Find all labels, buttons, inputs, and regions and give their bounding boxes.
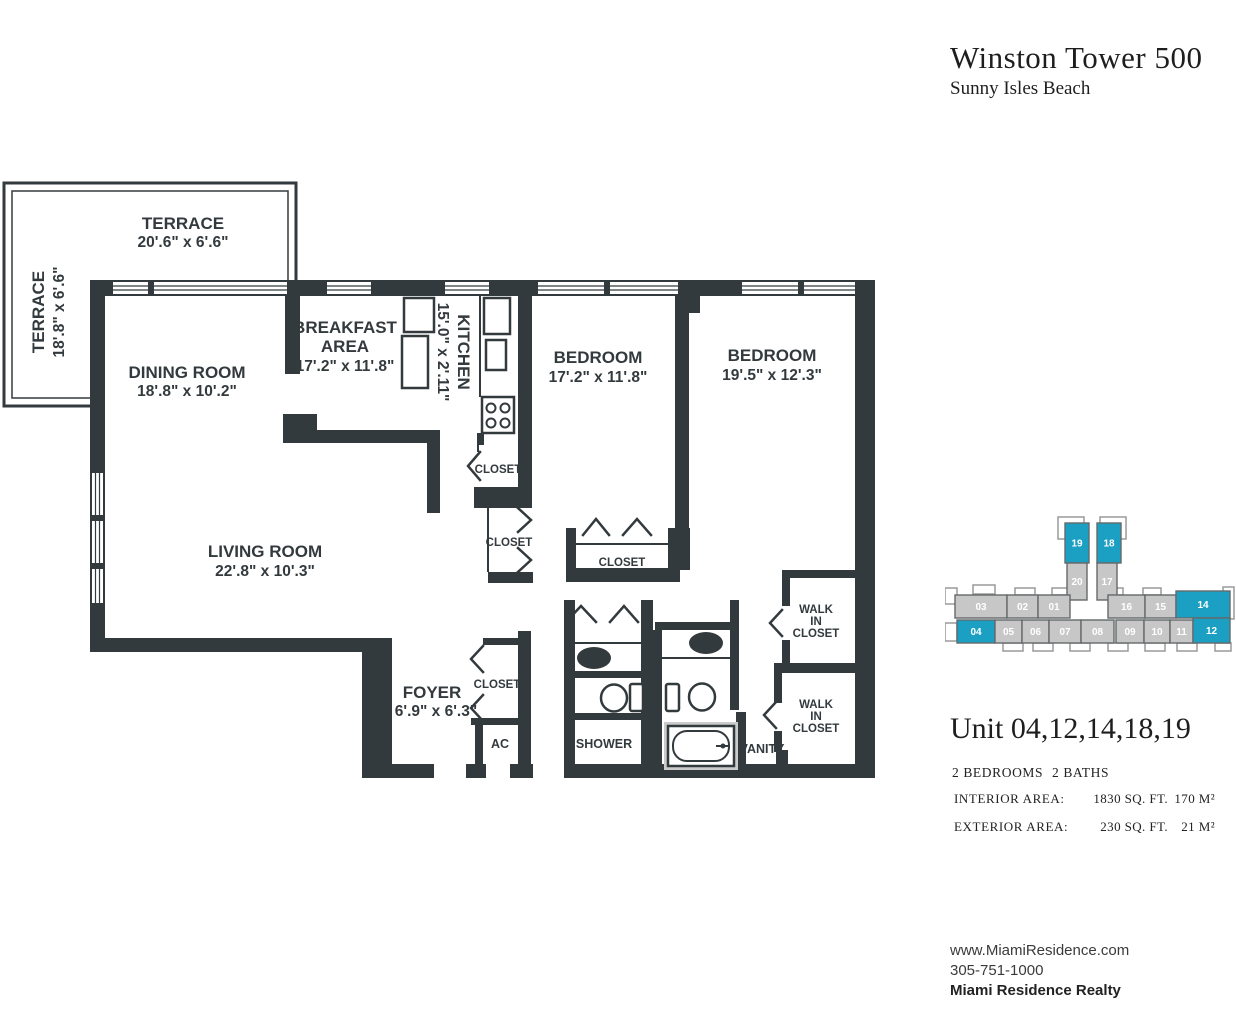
- unit-04-label: 04: [970, 627, 982, 638]
- bedroom2-label: BEDROOM: [728, 346, 817, 365]
- unit-16-label: 16: [1121, 602, 1133, 613]
- unit-07-label: 07: [1059, 627, 1071, 638]
- terrace-side-label: TERRACE: [29, 271, 48, 353]
- bedroom1-dims: 17'.2" x 11'.8": [549, 369, 648, 386]
- unit-12-label: 12: [1206, 626, 1218, 637]
- kitchen-label: KITCHEN: [454, 314, 473, 390]
- unit-01-label: 01: [1048, 602, 1060, 613]
- wic2-label-3: CLOSET: [793, 723, 840, 735]
- footer-company: Miami Residence Realty: [950, 982, 1121, 999]
- unit-09-label: 09: [1124, 627, 1136, 638]
- kitchen-dims: 15'.0" x 2'.11": [434, 303, 451, 402]
- windows-top: [113, 282, 855, 294]
- windows-left: [92, 473, 103, 603]
- building-title: Winston Tower 500: [950, 40, 1203, 76]
- exterior-area-sqft: 230 SQ. FT.: [1060, 819, 1168, 835]
- interior-area-m2: 170 M²: [1160, 791, 1215, 807]
- vanity-label: VANITY: [740, 742, 786, 756]
- living-dims: 22'.8" x 10'.3": [215, 563, 315, 580]
- breakfast-cabinet-2: [402, 336, 428, 388]
- baths-spec: 2 BATHS: [1052, 765, 1109, 781]
- unit-map: 19182017030201161514040506070809101112: [945, 515, 1235, 655]
- kitchen-cabinet: [486, 340, 506, 370]
- sink-2: [689, 632, 723, 654]
- interior-area-sqft: 1830 SQ. FT.: [1060, 791, 1168, 807]
- unit-05-label: 05: [1003, 627, 1015, 638]
- sink-1: [577, 647, 611, 669]
- exterior-area-label: EXTERIOR AREA:: [954, 819, 1068, 835]
- bedroom2-dims: 19'.5" x 12'.3": [722, 367, 822, 384]
- unit-02-label: 02: [1017, 602, 1029, 613]
- unit-18-label: 18: [1103, 539, 1115, 550]
- closet-bedroom-label: CLOSET: [599, 557, 646, 569]
- fridge: [484, 298, 510, 334]
- dining-dims: 18'.8" x 10'.2": [137, 383, 237, 400]
- unit-title: Unit 04,12,14,18,19: [950, 712, 1191, 746]
- bedroom1-label: BEDROOM: [554, 348, 643, 367]
- unit-08-label: 08: [1092, 627, 1104, 638]
- wic1-label-1: WALK: [799, 604, 834, 616]
- unit-map-units: 19182017030201161514040506070809101112: [955, 523, 1230, 643]
- closet-hall-label: CLOSET: [486, 537, 533, 549]
- shower-label: SHOWER: [576, 737, 632, 751]
- toilet-2: [666, 684, 715, 712]
- interior-area-label: INTERIOR AREA:: [954, 791, 1065, 807]
- exterior-area-m2: 21 M²: [1160, 819, 1215, 835]
- wic2-label-2: IN: [810, 711, 822, 723]
- breakfast-dims: 17'.2" x 11'.8": [296, 358, 395, 375]
- wic2-label-1: WALK: [799, 699, 834, 711]
- building-subtitle: Sunny Isles Beach: [950, 78, 1090, 100]
- page: TERRACE 20'.6" x 6'.6" TERRACE 18'.8" x …: [0, 0, 1236, 1020]
- unit-20-label: 20: [1071, 577, 1083, 588]
- footer-phone: 305-751-1000: [950, 962, 1043, 979]
- living-label: LIVING ROOM: [208, 542, 322, 561]
- footer-website: www.MiamiResidence.com: [950, 942, 1129, 959]
- closet-foyer-label: CLOSET: [474, 679, 521, 691]
- unit-17-label: 17: [1101, 577, 1113, 588]
- wic1-label-3: CLOSET: [793, 628, 840, 640]
- breakfast-label-2: AREA: [321, 337, 369, 356]
- foyer-dims: 6'.9" x 6'.3": [395, 703, 477, 720]
- toilet-1: [601, 684, 643, 712]
- floorplan: TERRACE 20'.6" x 6'.6" TERRACE 18'.8" x …: [0, 0, 940, 1020]
- foyer-label: FOYER: [403, 683, 462, 702]
- bathroom2-fixtures: [662, 632, 738, 770]
- breakfast-cabinet-1: [404, 298, 434, 332]
- unit-14-label: 14: [1197, 600, 1209, 611]
- unit-10-label: 10: [1151, 627, 1163, 638]
- bathtub: [664, 722, 738, 770]
- unit-03-label: 03: [975, 602, 987, 613]
- terrace-top-dims: 20'.6" x 6'.6": [137, 234, 228, 251]
- terrace-top-label: TERRACE: [142, 214, 224, 233]
- terrace-side-dims: 18'.8" x 6'.6": [51, 266, 68, 357]
- bedrooms-spec: 2 BEDROOMS: [952, 765, 1043, 781]
- unit-15-label: 15: [1155, 602, 1167, 613]
- unit-19-label: 19: [1071, 539, 1083, 550]
- unit-11-label: 11: [1176, 627, 1187, 638]
- closet-kitchen-label: CLOSET: [475, 464, 522, 476]
- breakfast-label-1: BREAKFAST: [293, 318, 398, 337]
- dining-label: DINING ROOM: [128, 363, 245, 382]
- stove: [482, 397, 514, 433]
- unit-06-label: 06: [1030, 627, 1042, 638]
- ac-label: AC: [491, 737, 509, 751]
- wic1-label-2: IN: [810, 616, 822, 628]
